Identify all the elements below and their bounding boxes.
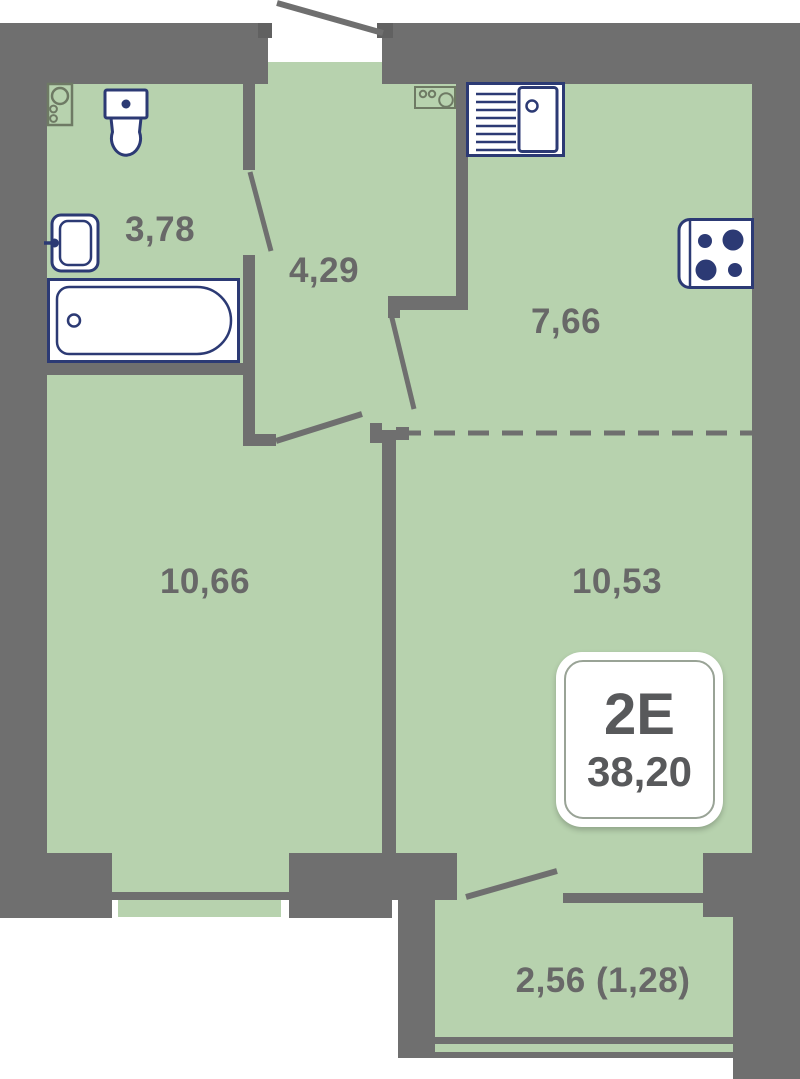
wall-balcony-bottom-outer — [435, 1052, 733, 1058]
wall-kitchen-stub — [388, 296, 400, 318]
wall-bottom-center — [289, 853, 392, 918]
floor-balcony-window-top — [563, 853, 703, 893]
wall-center — [382, 430, 396, 853]
entrance-door-leaf — [277, 3, 383, 33]
apartment-total-area: 38,20 — [587, 751, 692, 793]
wall-right-lower — [733, 900, 800, 1079]
room-label-balcony: 2,56 (1,28) — [516, 961, 691, 1001]
apartment-type-label: 2E — [604, 686, 675, 744]
wall-bottom-pier — [703, 853, 757, 917]
entrance-jamb-right — [377, 23, 393, 38]
wall-balcony-left — [398, 900, 435, 1058]
washing-machine-icon — [46, 82, 74, 132]
wall-bottom-left — [0, 853, 112, 918]
wall-center-tab — [396, 427, 409, 440]
boiler-icon — [414, 86, 456, 114]
floor-entrance-gap — [268, 62, 382, 84]
wall-bathroom-lower — [243, 255, 255, 446]
floor-window-bay — [112, 852, 289, 892]
wall-bay-window-line — [112, 892, 289, 900]
wall-balcony-window — [563, 893, 703, 903]
room-label-bathroom: 3,78 — [125, 210, 195, 250]
wall-bottom-step — [392, 853, 457, 900]
room-label-room-right: 10,53 — [572, 562, 662, 602]
apartment-type-badge: 2E 38,20 — [556, 652, 723, 827]
entrance-jamb-left — [258, 23, 272, 38]
wall-balcony-bottom-inner — [435, 1037, 733, 1044]
toilet-icon — [103, 88, 149, 173]
floor-balcony-glazing — [435, 1044, 733, 1052]
wall-top-left — [0, 23, 268, 84]
room-label-room-left: 10,66 — [160, 562, 250, 602]
wall-right-upper — [752, 84, 800, 900]
apartment-type-badge-frame: 2E 38,20 — [564, 660, 715, 819]
wall-top-right — [382, 23, 800, 84]
room-label-hallway: 4,29 — [289, 251, 359, 291]
wall-door-stub-left — [255, 434, 276, 446]
stove-icon — [676, 217, 755, 295]
kitchen-sink-icon — [466, 82, 565, 162]
floor-plan: 3,78 4,29 7,66 10,66 10,53 2,56 (1,28) 2… — [0, 0, 800, 1079]
room-label-kitchen: 7,66 — [531, 302, 601, 342]
washbasin-icon — [44, 212, 102, 279]
wall-left — [0, 84, 47, 918]
bathtub-icon — [47, 278, 240, 368]
wall-center-flange — [370, 423, 382, 443]
wall-bathroom-upper — [243, 84, 255, 170]
floor-window-bay-sill — [118, 900, 281, 917]
